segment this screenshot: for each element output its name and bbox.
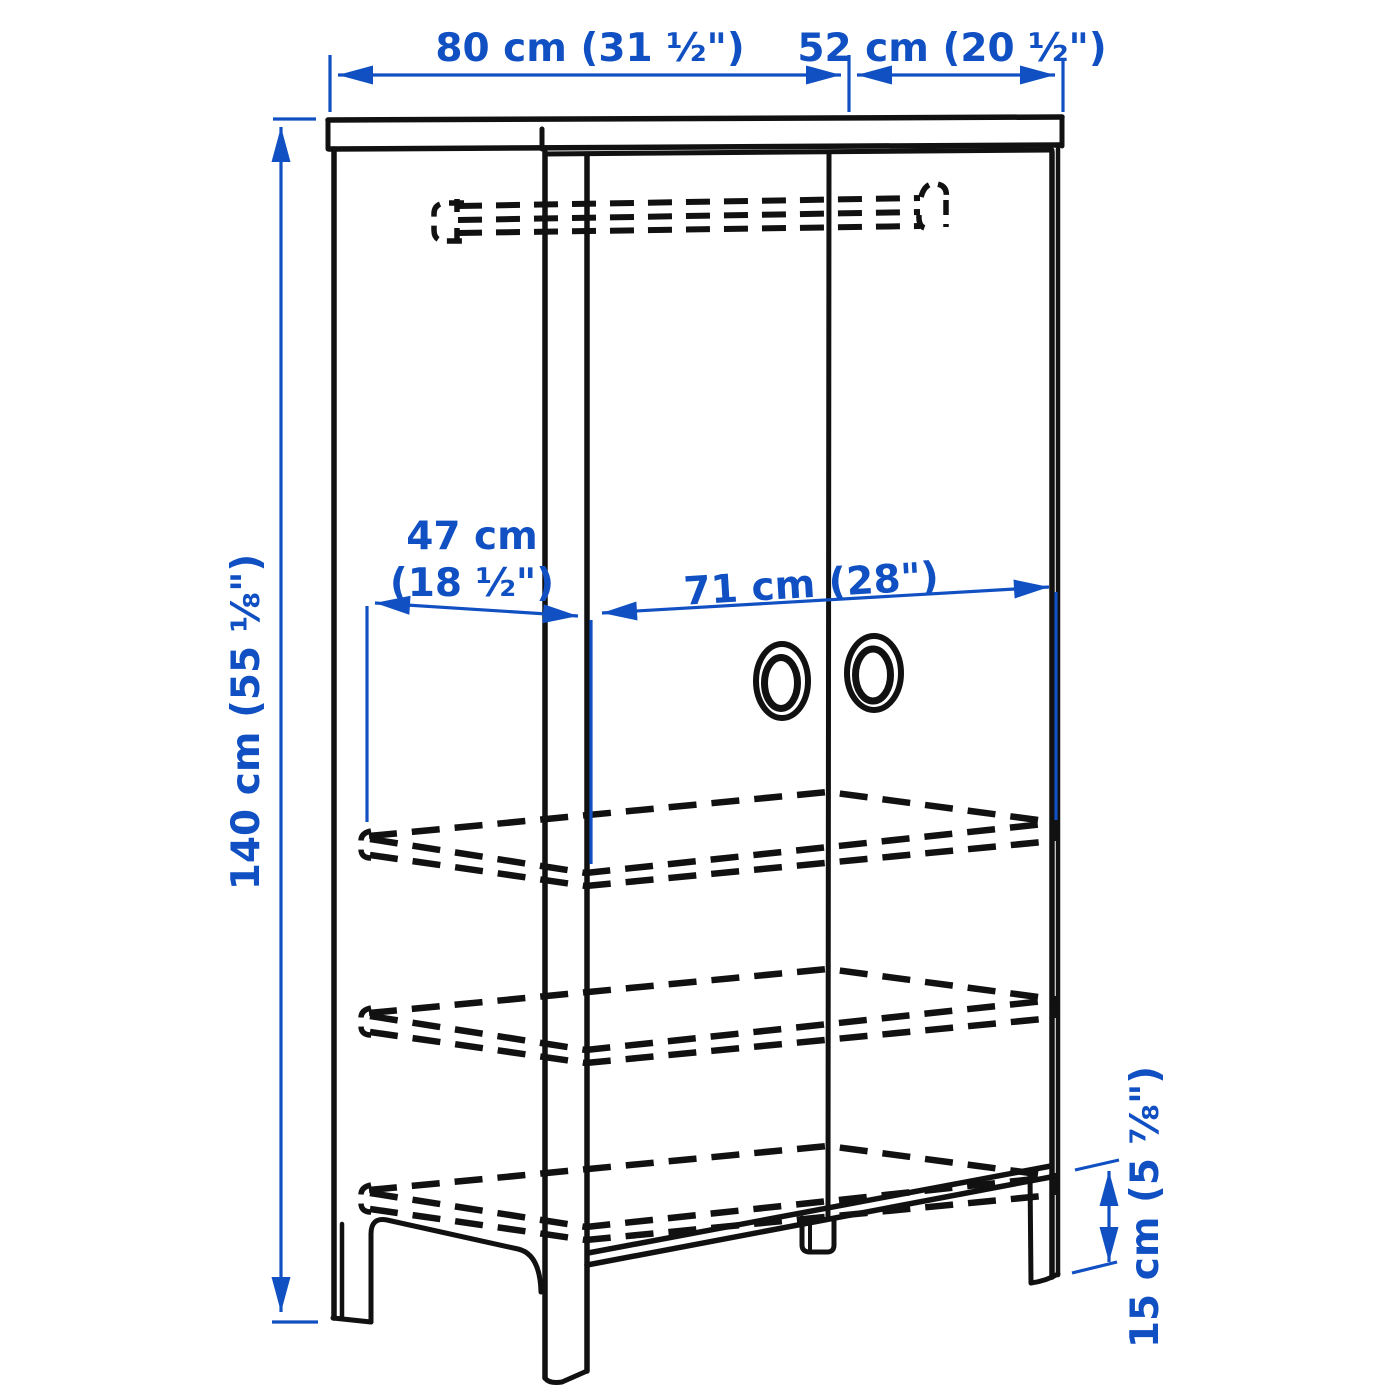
back-left-leg bbox=[333, 149, 541, 1322]
dim-interior-width-label: 71 cm (28") bbox=[682, 554, 940, 615]
shelf-1 bbox=[361, 792, 1053, 886]
dim-depth-label: 52 cm (20 ½") bbox=[797, 26, 1106, 71]
front-left-post bbox=[545, 152, 587, 1383]
product-dimension-diagram: 80 cm (31 ½") 52 cm (20 ½") 140 cm (55 ⅛… bbox=[0, 0, 1400, 1400]
door-gap bbox=[828, 153, 829, 1217]
dim-leg-height: 15 cm (5 ⅞") bbox=[1072, 1066, 1168, 1348]
dim-interior-depth-label-line2: (18 ½") bbox=[390, 561, 554, 606]
dim-interior-width: 71 cm (28") bbox=[591, 554, 1056, 864]
dim-leg-height-label: 15 cm (5 ⅞") bbox=[1123, 1066, 1168, 1348]
dim-width-label: 80 cm (31 ½") bbox=[435, 26, 744, 71]
left-door-knob bbox=[756, 644, 808, 718]
wardrobe-drawing bbox=[328, 117, 1062, 1383]
clothes-rail bbox=[434, 184, 946, 241]
rail-right-bracket bbox=[921, 184, 946, 198]
right-door-knob bbox=[847, 636, 901, 710]
shelf-3 bbox=[361, 1146, 1053, 1240]
wardrobe-diagram-svg: 80 cm (31 ½") 52 cm (20 ½") 140 cm (55 ⅛… bbox=[0, 0, 1400, 1400]
dim-width: 80 cm (31 ½") bbox=[330, 26, 849, 112]
dim-height-label: 140 cm (55 ⅛") bbox=[224, 554, 269, 891]
shelf-2 bbox=[361, 969, 1053, 1063]
dim-interior-depth-label-line1: 47 cm bbox=[406, 514, 538, 559]
dim-depth: 52 cm (20 ½") bbox=[797, 26, 1106, 112]
dim-height: 140 cm (55 ⅛") bbox=[224, 119, 318, 1322]
front-top-edge bbox=[545, 150, 1052, 154]
top-panel bbox=[328, 117, 1062, 149]
